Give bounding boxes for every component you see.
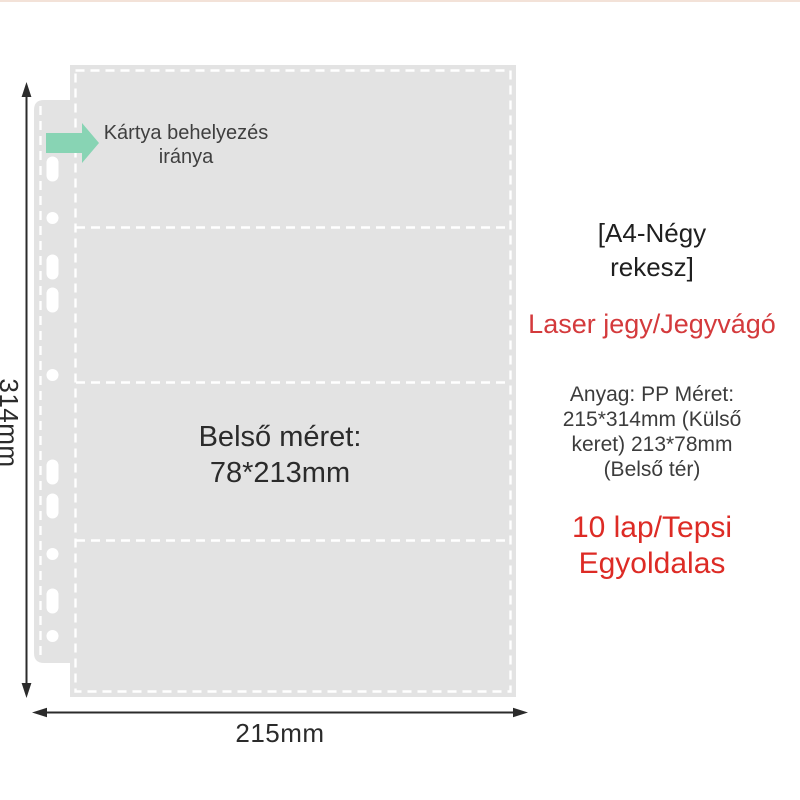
product-title-line1: [A4-Négy: [518, 216, 786, 250]
product-quantity: 10 lap/Tepsi Egyoldalas: [518, 510, 786, 582]
product-title: [A4-Négy rekesz]: [518, 216, 786, 284]
arrowhead-down-icon: [22, 683, 32, 698]
product-quantity-line2: Egyoldalas: [518, 546, 786, 582]
product-specs-line4: (Belső tér): [518, 457, 786, 482]
slot-hole: [47, 494, 59, 519]
slot-hole: [47, 589, 59, 614]
insertion-direction-line2: iránya: [96, 145, 276, 169]
insertion-direction-label: Kártya behelyezés iránya: [96, 121, 276, 169]
arrowhead-up-icon: [22, 82, 32, 97]
height-dimension-label: 314mm: [0, 356, 24, 490]
slot-hole: [47, 157, 59, 182]
round-hole: [47, 369, 59, 381]
product-specs-line2: 215*314mm (Külső: [518, 407, 786, 432]
product-specs-line3: keret) 213*78mm: [518, 432, 786, 457]
insertion-direction-line1: Kártya behelyezés: [96, 121, 276, 145]
slot-hole: [47, 288, 59, 313]
product-title-line2: rekesz]: [518, 250, 786, 284]
width-dimension-label: 215mm: [180, 718, 380, 749]
inner-size-label: Belső méret: 78*213mm: [150, 419, 410, 491]
round-hole: [47, 630, 59, 642]
inner-size-line2: 78*213mm: [150, 455, 410, 491]
product-quantity-line1: 10 lap/Tepsi: [518, 510, 786, 546]
round-hole: [47, 212, 59, 224]
product-subtitle: Laser jegy/Jegyvágó: [518, 308, 786, 340]
inner-size-line1: Belső méret:: [150, 419, 410, 455]
arrowhead-right-icon: [513, 708, 528, 718]
product-specs-line1: Anyag: PP Méret:: [518, 382, 786, 407]
slot-hole: [47, 460, 59, 485]
slot-hole: [47, 255, 59, 280]
product-info-panel: [A4-Négy rekesz] Laser jegy/Jegyvágó Any…: [518, 216, 786, 582]
product-specs: Anyag: PP Méret: 215*314mm (Külső keret)…: [518, 382, 786, 482]
width-dimension-line: [32, 708, 528, 718]
round-hole: [47, 548, 59, 560]
arrowhead-left-icon: [32, 708, 47, 718]
page-root: Kártya behelyezés iránya Belső méret: 78…: [0, 0, 800, 800]
